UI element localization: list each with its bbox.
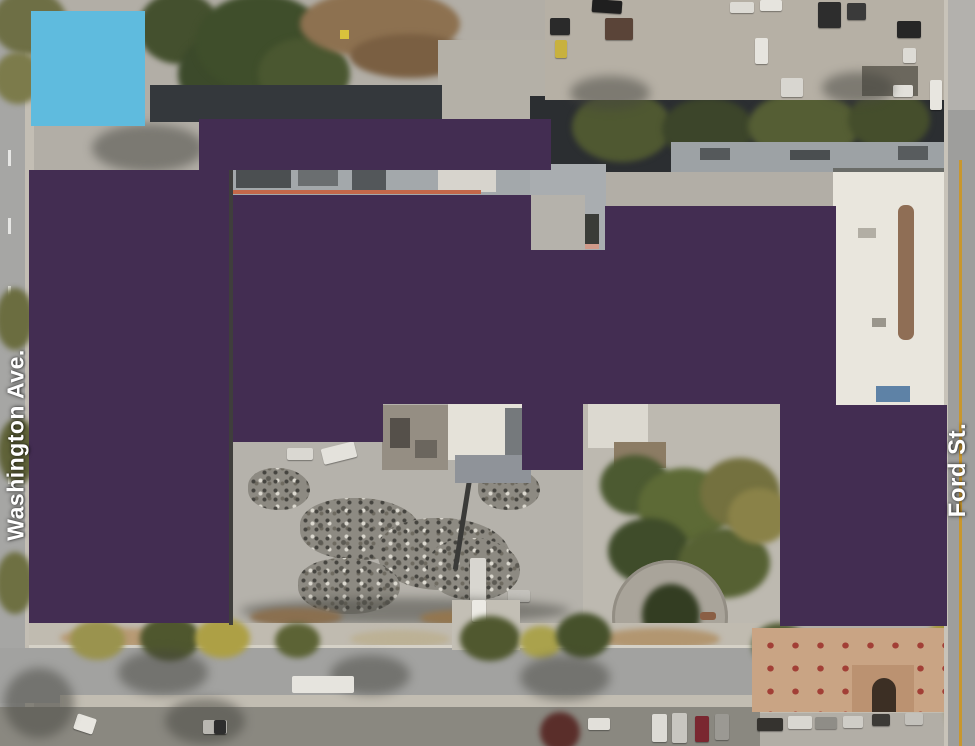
vehicle <box>872 714 890 726</box>
vehicle <box>550 18 570 35</box>
vehicle <box>287 448 313 460</box>
highlight-region-purple-southeast[interactable] <box>833 405 947 626</box>
roof-vent <box>700 148 730 160</box>
road-ford-st-light <box>948 0 975 110</box>
plaza-bench <box>700 612 716 620</box>
vehicle <box>903 48 916 63</box>
vehicle <box>897 21 921 38</box>
roof-section-dark <box>415 440 437 458</box>
highlight-region-purple-center-c[interactable] <box>530 250 606 404</box>
vehicle <box>730 2 754 13</box>
vehicle <box>652 714 667 742</box>
vehicle <box>757 718 783 731</box>
tree-shadow <box>570 76 650 110</box>
vehicle <box>843 716 863 728</box>
highlight-region-purple-center-east[interactable] <box>605 206 781 404</box>
roof-vent <box>872 318 886 327</box>
tree-shadow <box>92 124 204 172</box>
vehicle <box>555 40 567 58</box>
tree-canopy <box>195 618 250 658</box>
arch-doorway <box>872 678 896 712</box>
tree-shadow <box>4 668 74 738</box>
aerial-map: Washington Ave. Ford St. <box>0 0 975 746</box>
roof-vent <box>790 150 830 160</box>
vehicle <box>695 716 709 742</box>
street-label-washington-ave: Washington Ave. <box>3 349 30 541</box>
vehicle <box>470 558 486 604</box>
parking-lot-bottom <box>0 707 760 746</box>
roof-vent <box>858 228 876 238</box>
lane-dash <box>8 218 11 234</box>
vehicle <box>815 717 837 729</box>
roof-vent <box>898 146 928 160</box>
vehicle <box>715 714 729 740</box>
highlight-region-purple-west-block[interactable] <box>29 170 229 623</box>
tree-canopy <box>70 620 125 660</box>
vehicle <box>760 0 782 11</box>
vehicle <box>214 720 226 734</box>
highlight-region-purple-center-b[interactable] <box>382 195 531 404</box>
vehicle <box>930 80 942 110</box>
vehicle <box>672 713 687 743</box>
vehicle <box>781 78 803 97</box>
junk-pile <box>248 468 310 510</box>
roof-edge <box>833 168 948 172</box>
highlight-region-blue[interactable] <box>31 11 145 126</box>
vehicle <box>755 38 768 64</box>
building-roof <box>455 455 531 483</box>
roof-section-dark <box>390 418 410 448</box>
street-label-ford-st: Ford St. <box>944 423 972 518</box>
roof-section-dark <box>298 170 338 186</box>
yellow-object <box>340 30 349 39</box>
roof-structure-brown <box>898 205 914 340</box>
building-roof-dark <box>150 85 442 122</box>
vehicle <box>893 85 913 97</box>
plaza-red-tile <box>752 628 948 712</box>
roof-solar-panel <box>876 386 910 402</box>
highlight-region-purple-east-column[interactable] <box>780 206 836 626</box>
vehicle <box>905 713 923 725</box>
highlight-region-purple-top-bar[interactable] <box>199 119 551 170</box>
building-roof-white <box>833 168 948 406</box>
tree-canopy <box>556 613 611 658</box>
tree-shadow <box>118 650 208 695</box>
roof-red-edge <box>233 190 481 194</box>
vehicle <box>818 2 841 28</box>
lane-dash <box>8 150 11 166</box>
tree-canopy <box>275 623 320 658</box>
vehicle <box>588 718 610 730</box>
tree-shadow <box>822 72 894 104</box>
vehicle <box>592 0 623 14</box>
highlight-region-purple-center-a[interactable] <box>233 195 383 442</box>
tree-canopy <box>540 712 580 746</box>
tree-shadow <box>520 655 610 700</box>
truck-trailer <box>292 676 354 693</box>
vehicle <box>788 716 812 729</box>
tree-canopy <box>460 616 520 661</box>
vehicle <box>605 18 633 40</box>
vehicle <box>847 3 866 20</box>
highlight-region-purple-column[interactable] <box>522 400 583 470</box>
